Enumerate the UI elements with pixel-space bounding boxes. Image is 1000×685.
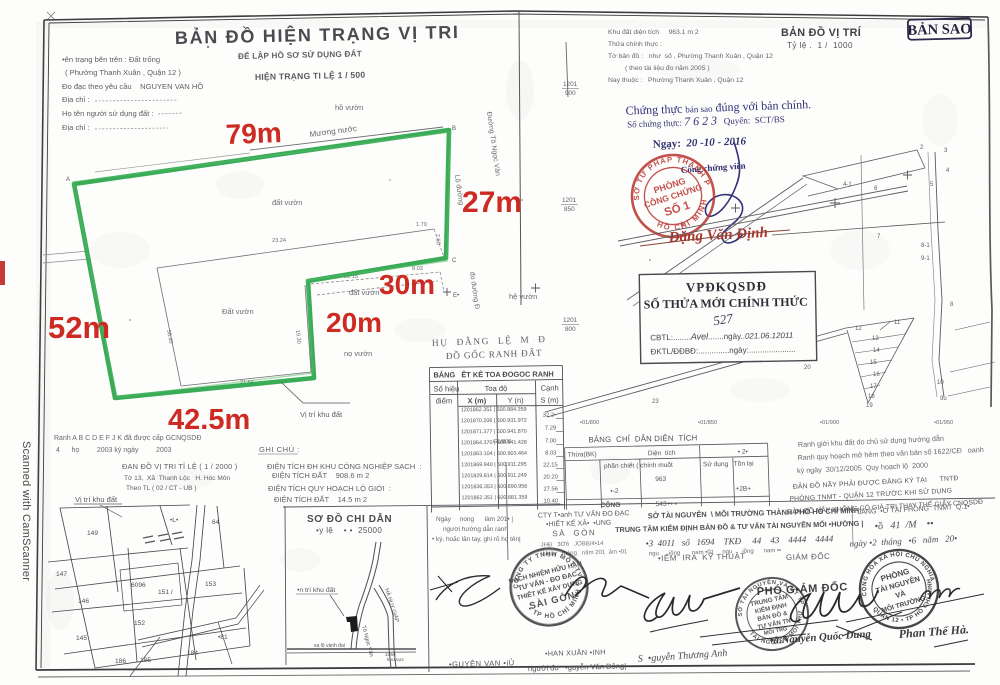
- svg-text:•L•: •L•: [170, 517, 179, 524]
- svg-text:64: 64: [212, 519, 220, 526]
- svg-text:1201871.377 | 600.941.870: 1201871.377 | 600.941.870: [461, 429, 527, 436]
- svg-text:hệ vườn: hệ vườn: [509, 292, 537, 301]
- svg-text:20m: 20m: [326, 307, 382, 338]
- svg-text:Số hiệu: Số hiệu: [434, 384, 460, 393]
- svg-text:Scanned with CamScanner: Scanned with CamScanner: [20, 441, 32, 581]
- svg-text:7.29: 7.29: [545, 425, 556, 431]
- svg-text:•-2: •-2: [610, 488, 619, 495]
- svg-text:23: 23: [652, 399, 659, 405]
- svg-text:SÀ GÒN: SÀ GÒN: [552, 528, 596, 538]
- svg-text:15: 15: [870, 360, 877, 366]
- svg-text:145: 145: [76, 635, 87, 642]
- svg-text:1201: 1201: [563, 317, 578, 324]
- svg-text:Khu đất diện tích 963.1 m: Khu đất diện tích 963.1 m 2: [608, 27, 699, 36]
- svg-text:khu vực: khu vực: [387, 657, 405, 663]
- svg-text:1201862.351 | 600.881.359: 1201862.351 | 600.881.359: [461, 495, 527, 502]
- svg-text:Y (n): Y (n): [508, 396, 524, 405]
- svg-text:152: 152: [134, 620, 145, 627]
- svg-text:S (m): S (m): [541, 395, 559, 404]
- svg-text:đất vườn: đất vườn: [272, 198, 302, 207]
- svg-text:17: 17: [870, 384, 877, 390]
- svg-text:•HAN XUÂN •INH: •HAN XUÂN •INH: [545, 647, 606, 658]
- svg-text:hồ vườn: hồ vườn: [335, 103, 363, 112]
- svg-text:•81: •81: [218, 634, 228, 641]
- svg-text:1201829.814 | 600.911.249: 1201829.814 | 600.911.249: [461, 473, 527, 480]
- svg-text:Tỷ lệ . 1 / 1000: Tỷ lệ . 1 / 1000: [787, 41, 853, 50]
- svg-text:GIÁM ĐỐC: GIÁM ĐỐC: [786, 551, 831, 562]
- svg-text:ĐIỆN TÍCH ĐẤT 14.5 m 2: ĐIỆN TÍCH ĐẤT 14.5 m 2: [274, 494, 367, 504]
- svg-text:8.03: 8.03: [545, 450, 556, 456]
- svg-text:Đất vườn: Đất vườn: [222, 307, 254, 316]
- svg-text:Ranh A B C D E F J K đã được c: Ranh A B C D E F J K đã được cấp GCNQSDĐ: [54, 433, 201, 442]
- svg-text:14: 14: [873, 348, 880, 354]
- svg-text:4 họ 2003 ký ngày: 4 họ 2003 ký ngày 2003: [56, 447, 172, 454]
- svg-text:Địa chỉ :: Địa chỉ :: [62, 123, 89, 132]
- svg-text:11: 11: [894, 320, 901, 326]
- svg-text:963: 963: [655, 476, 666, 483]
- svg-text:22.15: 22.15: [543, 462, 558, 468]
- svg-text:•ên trạng bên trên : Đất trống: •ên trạng bên trên : Đất trống: [62, 55, 160, 64]
- svg-text:X (m): X (m): [468, 396, 487, 405]
- svg-text:người hướng dẫn ranh: người hướng dẫn ranh: [443, 524, 508, 533]
- svg-text:18: 18: [868, 394, 875, 400]
- svg-text:ĐIỆN TÍCH ĐẤT 908.6 m 2: ĐIỆN TÍCH ĐẤT 908.6 m 2: [272, 470, 369, 480]
- svg-text:BẢNG ÊT KÊ TOA ĐOGOC RANH: BẢNG ÊT KÊ TOA ĐOGOC RANH: [433, 369, 553, 379]
- svg-text:C: C: [452, 258, 457, 264]
- svg-text:E•: E•: [453, 293, 459, 299]
- svg-text:151 /: 151 /: [158, 589, 173, 596]
- svg-text:527: 527: [712, 310, 734, 328]
- svg-text:• 2•: • 2•: [738, 449, 749, 456]
- svg-text:HIỆN TRẠNG TI LỆ 1 / 500: HIỆN TRẠNG TI LỆ 1 / 500: [255, 69, 366, 82]
- svg-text:7.60: 7.60: [434, 234, 441, 245]
- svg-text:Vị trí khu đất: Vị trí khu đất: [75, 495, 118, 504]
- svg-text:1201870.206 | 600.931.972: 1201870.206 | 600.931.972: [461, 418, 527, 425]
- svg-text:20.20: 20.20: [543, 474, 558, 480]
- svg-text:146: 146: [78, 598, 89, 605]
- svg-text:A: A: [66, 177, 70, 183]
- svg-text:•n trí khu đất: •n trí khu đất: [297, 585, 335, 594]
- svg-text:Đo đạc theo yêu cầu NGUYEN: Đo đạc theo yêu cầu NGUYEN VAN HỒ: [62, 81, 203, 91]
- svg-text:•01/800: •01/800: [580, 420, 599, 426]
- svg-text:ĐAN ĐỒ VỊ TRI TỈ LỆ ( 1 / 2000: ĐAN ĐỒ VỊ TRI TỈ LỆ ( 1 / 2000 ): [122, 461, 237, 471]
- svg-text:149: 149: [87, 530, 98, 537]
- svg-text:Vị trí khu đất: Vị trí khu đất: [300, 410, 343, 419]
- svg-text:xa lộ vành đai: xa lộ vành đai: [314, 643, 345, 649]
- svg-text:543+• •: 543+• •: [656, 501, 678, 508]
- svg-text:+2B+: +2B+: [735, 485, 751, 492]
- svg-text:• ký, hoặc lăn tay, ghi rõ họ: • ký, hoặc lăn tay, ghi rõ họ tên|: [432, 536, 521, 543]
- svg-text:B: B: [452, 126, 456, 132]
- svg-text:1201: 1201: [562, 197, 577, 204]
- svg-text:Thửa chính thực :: Thửa chính thực :: [608, 40, 662, 48]
- svg-text:20: 20: [804, 365, 811, 371]
- svg-text:186: 186: [115, 658, 126, 665]
- svg-text:185: 185: [140, 657, 151, 664]
- svg-text:Ngày nong làm 201• |: Ngày nong làm 201• |: [436, 516, 513, 523]
- svg-text:( Phường Thanh Xuân , Quận 12: ( Phường Thanh Xuân , Quận 12 ): [65, 68, 181, 77]
- svg-text:23.24: 23.24: [272, 238, 286, 244]
- svg-text:27.56: 27.56: [543, 486, 558, 492]
- svg-text:1201: 1201: [563, 81, 578, 88]
- svg-text:1201869.940 | 600.911.295: 1201869.940 | 600.911.295: [461, 462, 527, 469]
- svg-text:điểm: điểm: [436, 396, 453, 405]
- svg-text:153: 153: [205, 581, 216, 588]
- svg-text:32.2•: 32.2•: [543, 412, 556, 418]
- svg-text:6096: 6096: [131, 582, 146, 589]
- svg-text:•y lệ • • 25000: •y lệ • • 25000: [316, 526, 382, 535]
- svg-text:9u: 9u: [940, 396, 947, 402]
- svg-text:1201864.370 | 600.941.428: 1201864.370 | 600.941.428: [461, 440, 527, 447]
- svg-text:Thừa(BK): Thừa(BK): [568, 451, 597, 459]
- svg-text:800: 800: [565, 326, 576, 333]
- svg-text:Toạ độ: Toạ độ: [485, 384, 508, 393]
- svg-text:12: 12: [855, 326, 862, 332]
- svg-text:Cạnh: Cạnh: [541, 383, 559, 392]
- svg-text:•01/950: •01/950: [934, 420, 953, 426]
- svg-text:BẢNG CHỈ DẪN DIỆN TÍCH: BẢNG CHỈ DẪN DIỆN TÍCH: [588, 433, 697, 444]
- svg-text:13: 13: [872, 336, 879, 342]
- svg-text:SỐ THỬA MỚI CHÍNH THỨC: SỐ THỬA MỚI CHÍNH THỨC: [644, 294, 808, 312]
- svg-text:42.5m: 42.5m: [168, 404, 250, 436]
- svg-text:184: 184: [187, 650, 198, 657]
- svg-text:1201863.104 | 600.903.464: 1201863.104 | 600.903.464: [461, 451, 527, 458]
- svg-text:SƠ ĐỒ CHI DẪN: SƠ ĐỒ CHI DẪN: [307, 512, 392, 525]
- svg-text:7.00: 7.00: [545, 438, 556, 444]
- svg-text:16: 16: [873, 372, 880, 378]
- svg-text:850: 850: [564, 206, 575, 213]
- svg-text:27m: 27m: [462, 186, 522, 219]
- svg-text:1201862.351 | 600.884.359: 1201862.351 | 600.884.359: [461, 407, 527, 414]
- svg-text:GHI CHÚ :: GHI CHÚ :: [259, 445, 300, 454]
- svg-text:•01/850: •01/850: [698, 420, 717, 426]
- svg-text:đất vườn: đất vườn: [349, 288, 379, 297]
- svg-text:4-1: 4-1: [843, 182, 852, 188]
- svg-text:Diện tích: Diện tích: [648, 450, 676, 457]
- svg-text:nọ vườn: nọ vườn: [344, 349, 372, 358]
- svg-text:9-1: 9-1: [921, 256, 930, 262]
- svg-text:30m: 30m: [379, 269, 435, 300]
- svg-text:ĐIỆN TÍCH ĐH KHU CÔNG NGHIỆP S: ĐIỆN TÍCH ĐH KHU CÔNG NGHIỆP SẠCH :: [267, 462, 422, 471]
- svg-text:Họ tên người sử dụng đất :: Họ tên người sử dụng đất :: [62, 109, 154, 118]
- svg-text:8-1: 8-1: [921, 243, 930, 249]
- svg-text:Địa chỉ :: Địa chỉ :: [62, 95, 89, 104]
- svg-text:79m: 79m: [225, 117, 282, 150]
- svg-text:10: 10: [937, 380, 944, 386]
- svg-text:1201836.353 | 600.890.956: 1201836.353 | 600.890.956: [461, 484, 527, 491]
- svg-text:ĐIỆN TÍCH QUY HOẠCH LỘ GIỚI :: ĐIỆN TÍCH QUY HOẠCH LỘ GIỚI :: [268, 484, 391, 493]
- svg-text:1.79: 1.79: [416, 222, 427, 228]
- svg-text:19: 19: [866, 403, 873, 409]
- svg-text:•01/900: •01/900: [820, 420, 839, 426]
- svg-text:52m: 52m: [48, 310, 110, 345]
- svg-text:VPĐKQSDĐ: VPĐKQSDĐ: [686, 278, 767, 294]
- svg-text:•GUYÊN VAN •iỦ: •GUYÊN VAN •iỦ: [449, 658, 515, 669]
- svg-text:900: 900: [565, 90, 576, 97]
